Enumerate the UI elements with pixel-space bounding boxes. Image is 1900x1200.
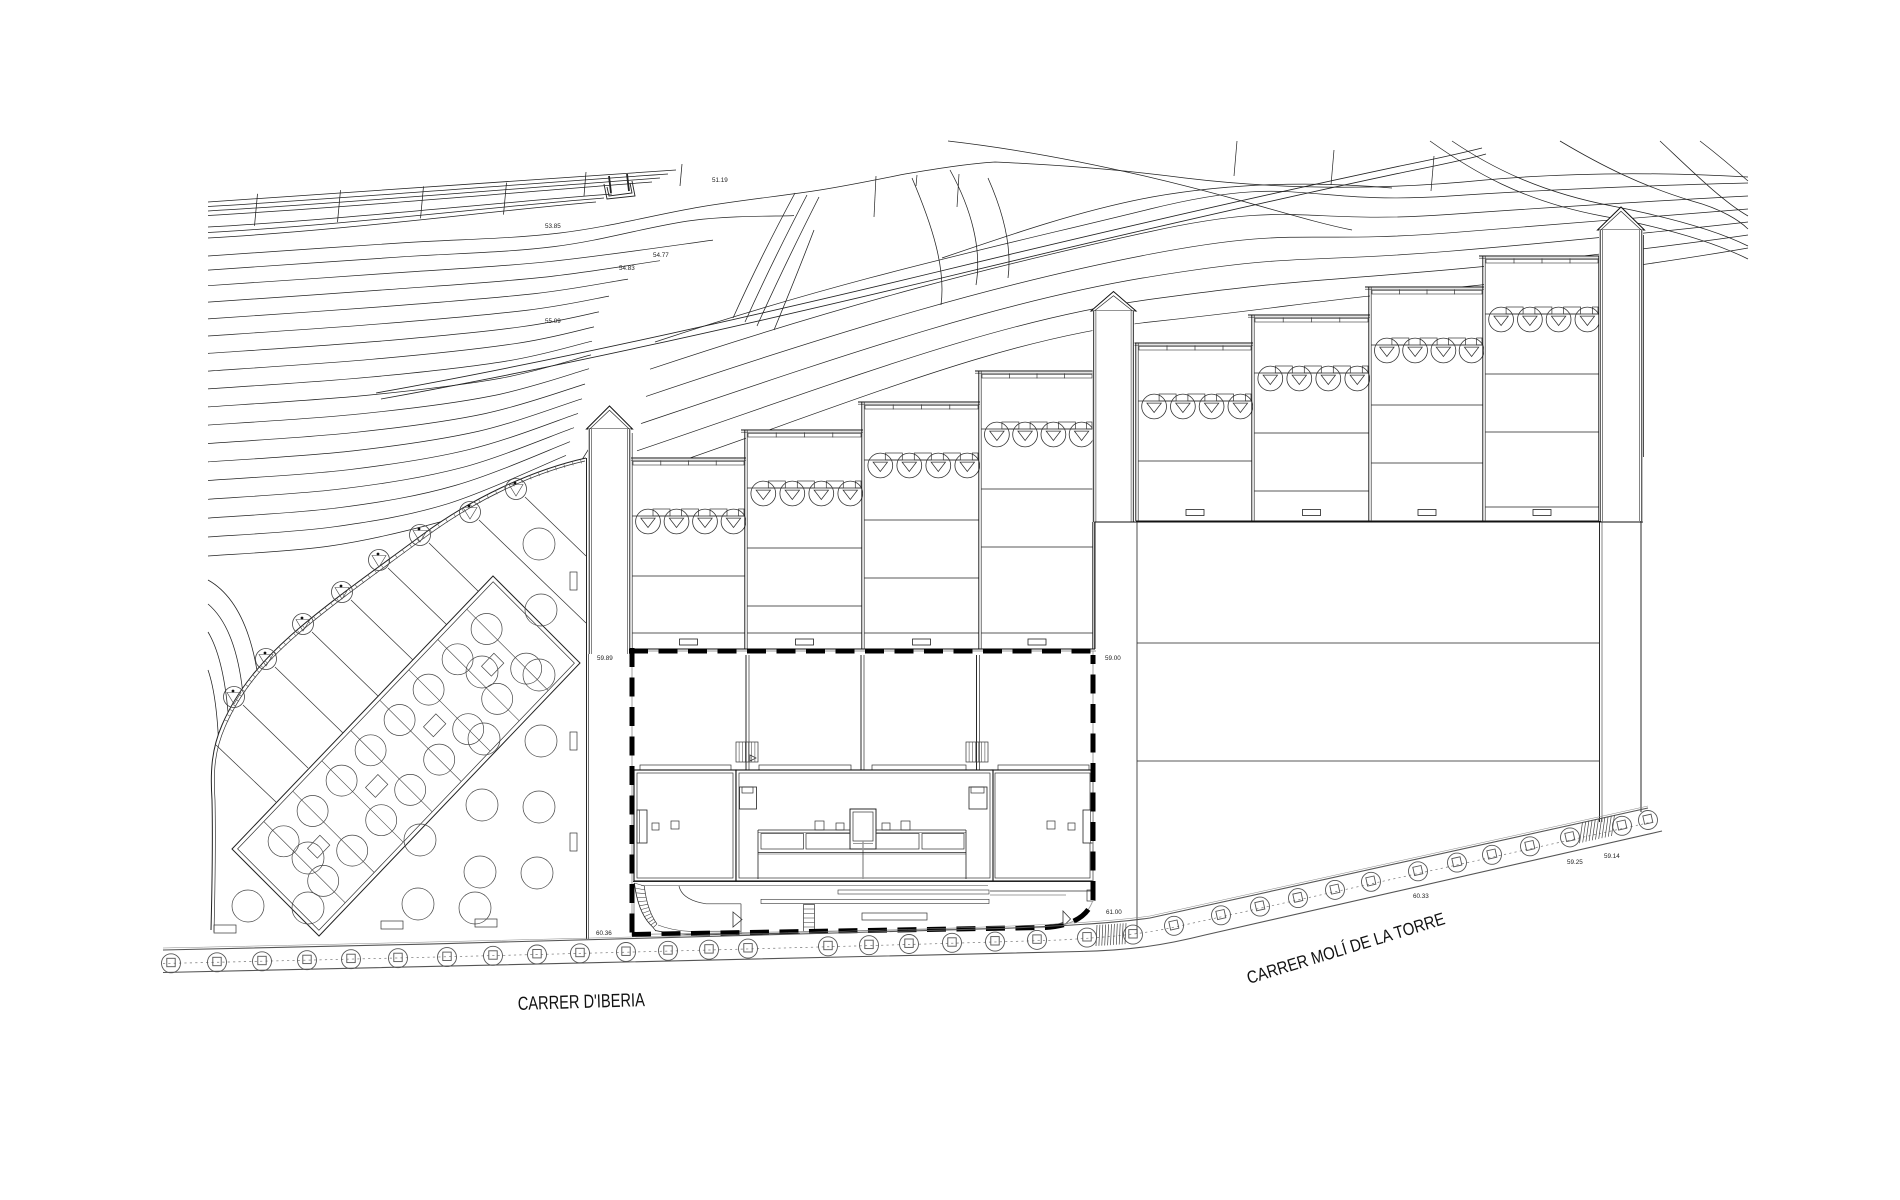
svg-text:CARRER D'IBERIA: CARRER D'IBERIA: [517, 990, 645, 1015]
svg-text:59.25: 59.25: [1567, 859, 1583, 866]
svg-text:53.85: 53.85: [545, 223, 561, 230]
svg-text:60.33: 60.33: [1413, 893, 1429, 900]
svg-text:55.09: 55.09: [545, 318, 561, 325]
svg-text:60.36: 60.36: [596, 930, 612, 937]
svg-text:54.83: 54.83: [619, 265, 635, 272]
svg-text:CARRER MOLÍ DE LA TORRE: CARRER MOLÍ DE LA TORRE: [1244, 908, 1447, 987]
svg-text:51.19: 51.19: [712, 177, 728, 184]
svg-text:59.89: 59.89: [597, 655, 613, 662]
svg-text:61.00: 61.00: [1106, 909, 1122, 916]
svg-text:54.77: 54.77: [653, 252, 669, 259]
svg-text:59.14: 59.14: [1604, 853, 1620, 860]
svg-text:59.00: 59.00: [1105, 655, 1121, 662]
